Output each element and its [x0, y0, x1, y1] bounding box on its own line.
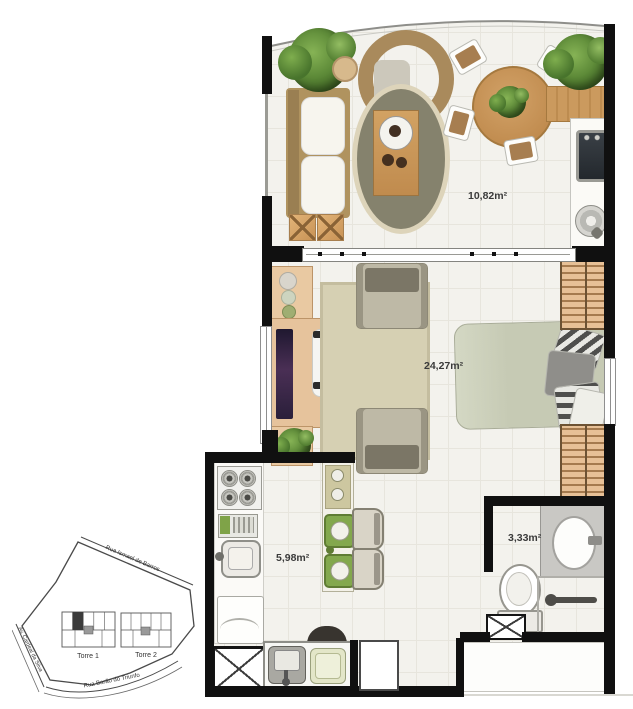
vanity-faucet-icon	[588, 536, 602, 545]
highlighted-unit	[73, 612, 84, 630]
wall	[350, 640, 358, 687]
grab-bar-icon	[551, 597, 597, 603]
small-plate	[331, 488, 344, 501]
wood-cube-stool	[317, 214, 344, 241]
balcony-sofa-cushion	[301, 156, 345, 214]
washer-lid	[315, 653, 341, 679]
entry-door	[359, 640, 399, 691]
wall	[484, 496, 615, 506]
area-label-studio: 24,27m²	[424, 360, 463, 372]
place-setting	[324, 554, 355, 588]
grab-bar-knob	[545, 594, 557, 606]
site-key-plan: Rua Ismael de Barros Av. Cardeal da Silv…	[12, 524, 204, 706]
bowl-icon	[382, 154, 394, 166]
burner-icon	[239, 489, 256, 506]
door-panel-dot	[362, 252, 366, 256]
tv-icon	[276, 329, 293, 419]
kitchen-sink-basin	[228, 547, 253, 570]
door-panel-dot	[318, 252, 322, 256]
sliding-door-rail	[306, 254, 570, 255]
toilet-seat	[506, 572, 532, 606]
wall	[522, 632, 608, 642]
wall	[604, 254, 615, 358]
decor-bowl	[281, 290, 296, 305]
table-centerpiece-plant-icon	[494, 86, 526, 118]
door-panel-dot	[340, 252, 344, 256]
wall	[456, 638, 464, 697]
glass-railing-left	[265, 94, 268, 196]
kitchen-faucet-icon	[215, 552, 224, 561]
plant-icon	[552, 34, 608, 90]
fridge-door-arc	[220, 618, 259, 640]
duct-shaft	[486, 614, 526, 640]
small-plate	[331, 469, 344, 482]
tower-label: Torre 2	[135, 652, 157, 659]
wall	[262, 246, 304, 262]
area-label-kitchen: 5,98m²	[276, 552, 309, 564]
wall	[484, 496, 493, 572]
bar-stool	[352, 548, 384, 590]
window	[260, 326, 272, 444]
small-green-dot	[326, 546, 334, 554]
balcony-sofa-back	[288, 90, 299, 216]
tower-1-footprint	[62, 612, 115, 647]
tower-label: Torre 1	[77, 653, 99, 660]
area-label-balcony: 10,82m²	[468, 190, 507, 202]
bar-counter-top	[546, 86, 608, 122]
wall	[460, 632, 490, 642]
bowl-icon	[396, 157, 407, 168]
wood-cube-stool	[289, 214, 316, 241]
wall	[205, 686, 464, 697]
area-label-bathroom: 3,33m²	[508, 532, 541, 544]
microwave-door	[220, 516, 230, 534]
laundry-tank-basin	[274, 650, 300, 671]
wall	[604, 24, 615, 254]
floor-plan-page: 10,82m² 24,27m² 5,98m² 3,33m²	[0, 0, 633, 709]
decor-bowl	[282, 305, 296, 319]
shower-glass-line	[537, 576, 539, 632]
studio-armchair	[356, 263, 428, 329]
door-panel-dot	[514, 252, 518, 256]
wall	[205, 452, 355, 463]
wardrobe	[560, 424, 610, 500]
ground-line	[463, 694, 633, 696]
door-panel-dot	[492, 252, 496, 256]
door-panel-dot	[470, 252, 474, 256]
bar-stool	[352, 508, 384, 550]
place-setting	[324, 514, 355, 548]
dining-chair	[503, 135, 539, 166]
wall	[205, 452, 214, 697]
studio-armchair	[356, 408, 428, 474]
outside-hall	[463, 642, 607, 692]
balcony-sofa-cushion	[301, 97, 345, 155]
burner-icon	[221, 489, 238, 506]
rattan-side-table	[332, 56, 358, 82]
shower-glass-line	[537, 576, 605, 578]
window	[604, 358, 616, 426]
wall	[604, 424, 615, 694]
decor-bowl	[279, 272, 297, 290]
tray-food	[389, 125, 401, 137]
microwave-grille	[233, 517, 254, 533]
tank-faucet-knob	[282, 678, 290, 686]
burner-icon	[221, 470, 238, 487]
wall	[262, 36, 272, 94]
wardrobe	[560, 254, 610, 330]
burner-icon	[239, 470, 256, 487]
wall	[262, 262, 272, 326]
tower-2-footprint	[121, 613, 171, 647]
